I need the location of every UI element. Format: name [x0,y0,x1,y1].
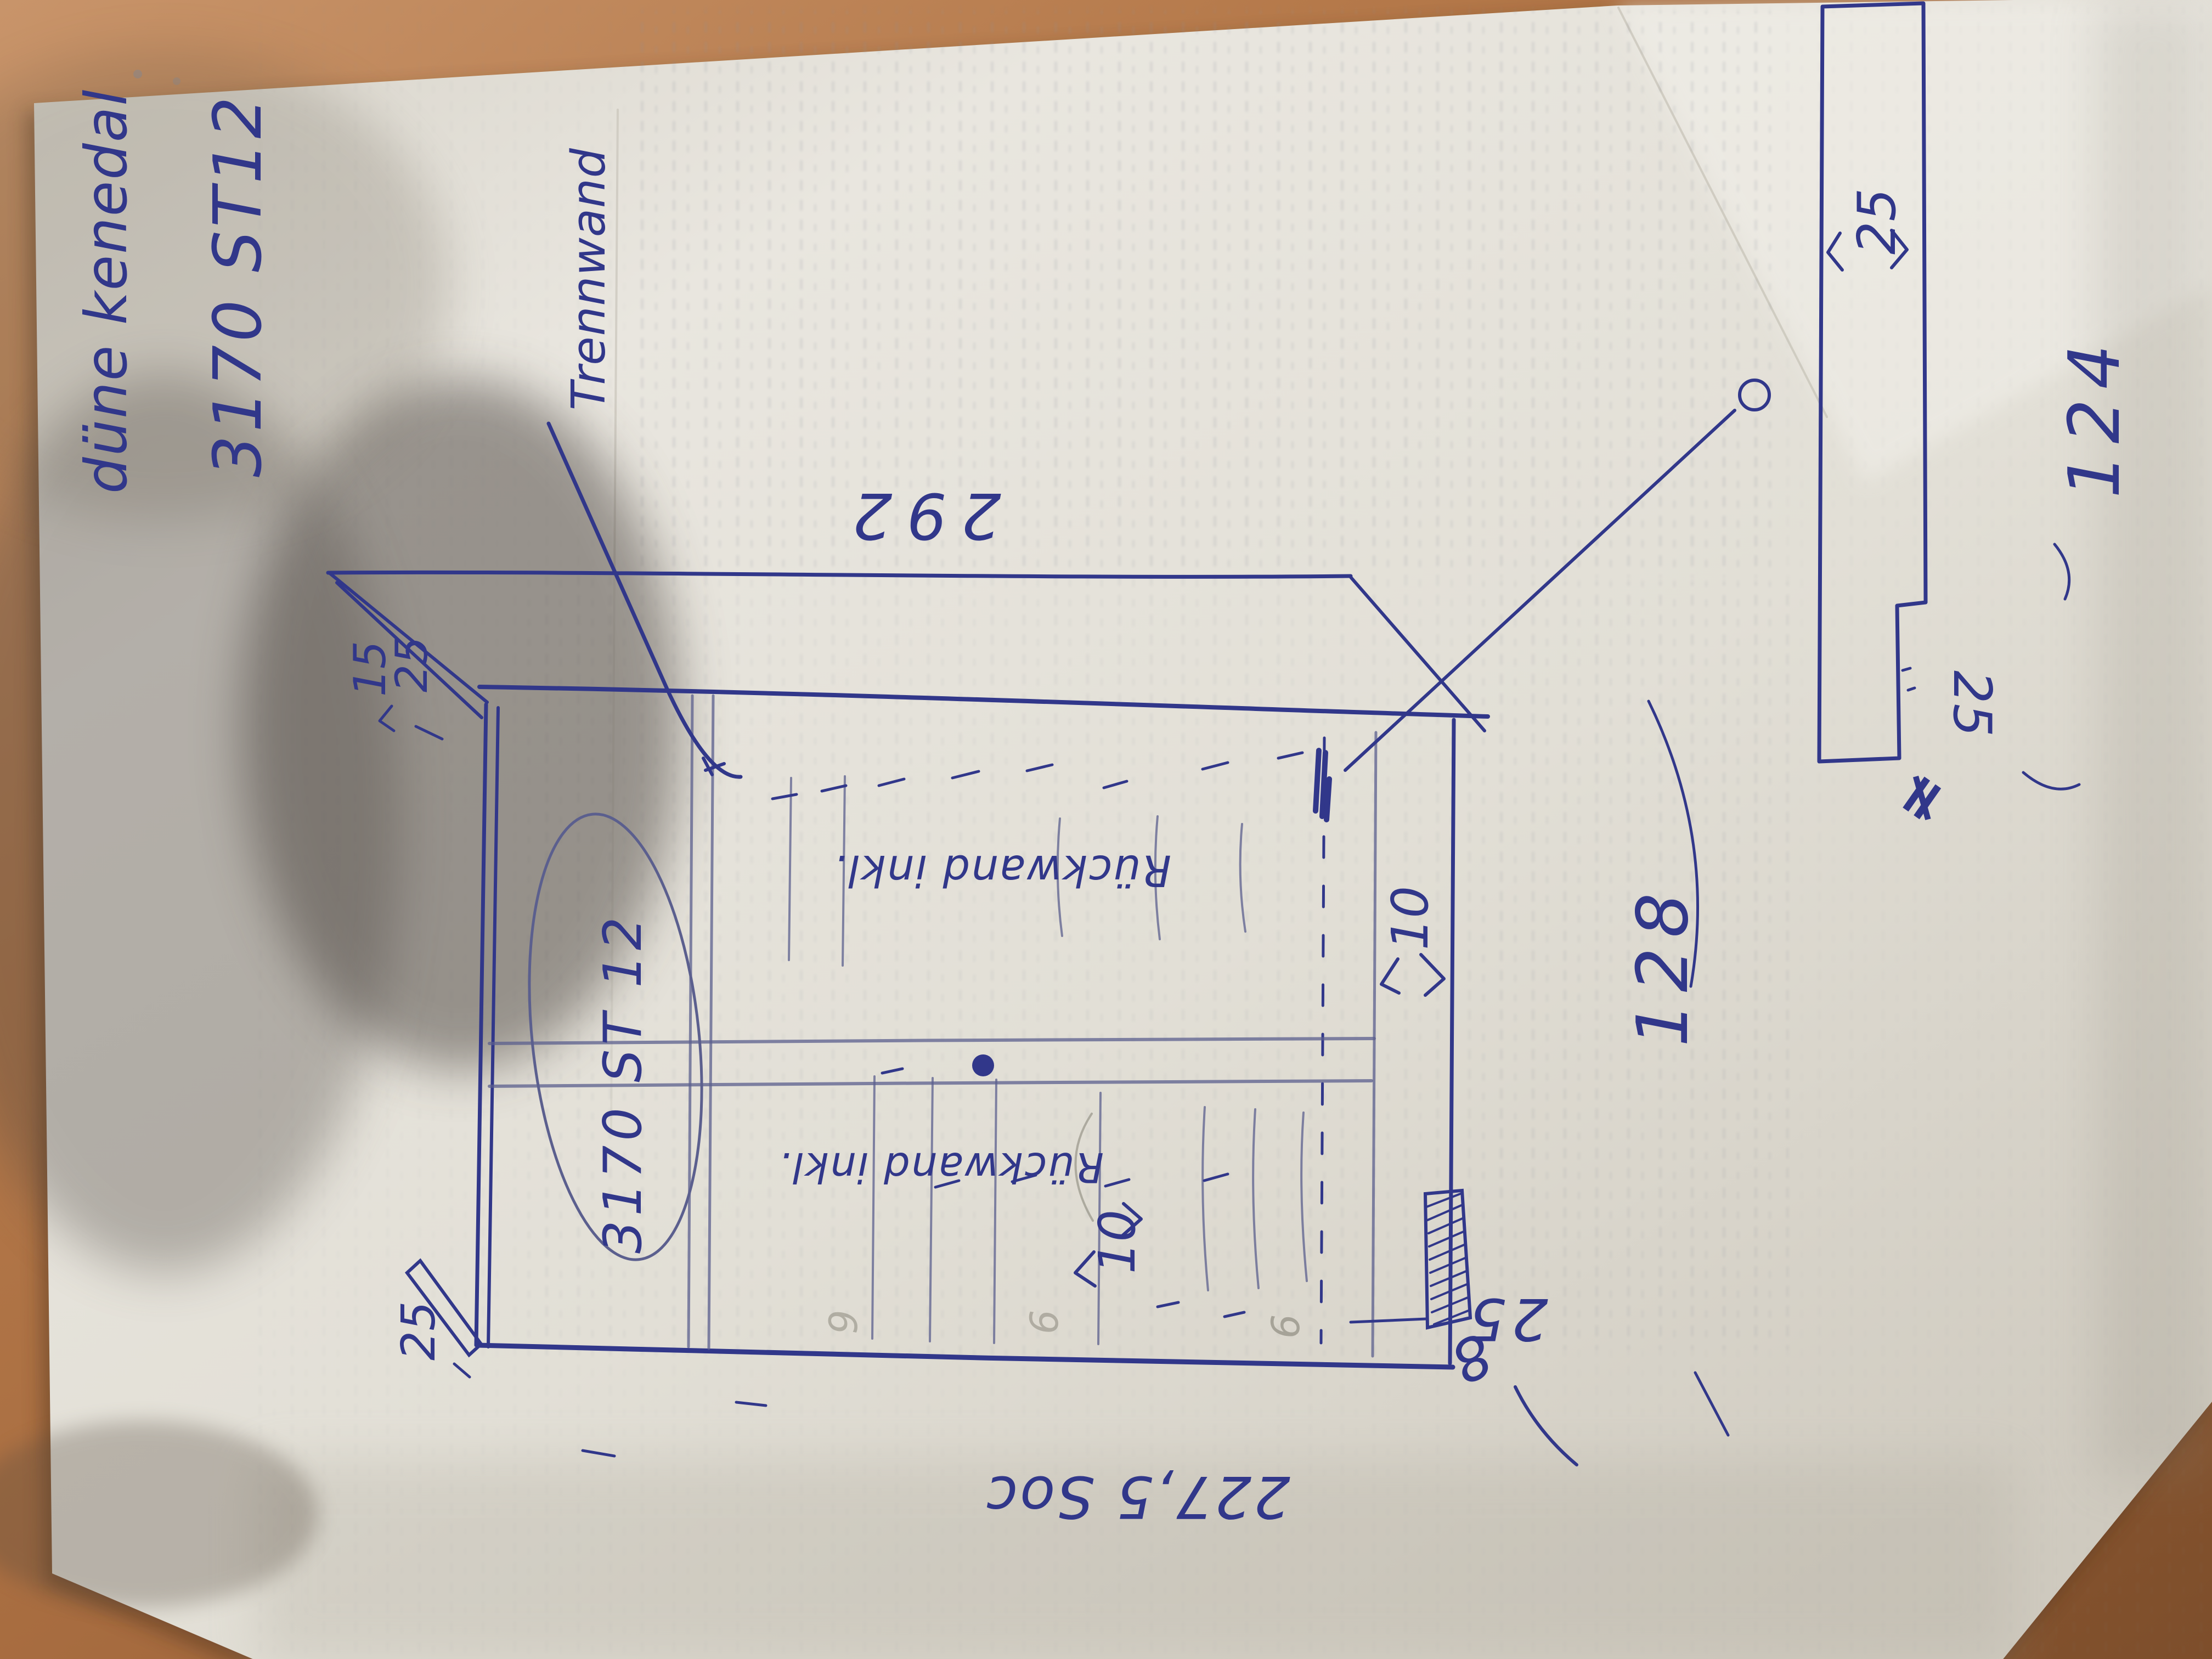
annotation-divider-text: Trennwand [562,148,616,410]
dim-10-right-label: 10 [1381,886,1440,950]
note-right-compartment: Rückwand inkl. [832,845,1171,895]
strip-width-step-label: 25 [1942,670,2002,737]
photo-of-hand-sketch: düne kenedal 3170 ST12 292 [0,0,2212,1659]
ink-blob [972,1054,994,1076]
corner-top-mark-b: 25 [386,636,437,692]
sketch-photo-canvas: düne kenedal 3170 ST12 292 [0,0,2212,1659]
dim-10-left-label: 10 [1088,1210,1147,1274]
strip-width-top-label: 25 [1847,188,1908,255]
note-left-compartment: Rückwand inkl. [777,1143,1104,1192]
decor-code-text: 3170 ST 12 [593,913,653,1254]
dim-124-label: 124 [2054,335,2136,498]
pencil-mark-1: 9 [821,1310,866,1334]
customer-name-text: düne kenedal [73,89,140,494]
dim-128-label: 128 [1622,883,1704,1047]
base-note-text: 227,5 Soc [984,1463,1290,1530]
model-code-text: 3170 ST12 [200,93,276,477]
dim-292-label: 292 [838,478,1002,552]
corner-bottom-mark: 25 [392,1301,446,1361]
pencil-mark-3: 6 [1263,1314,1308,1339]
ink-scribble-mark [1316,751,1329,820]
pencil-mark-2: 6 [1022,1310,1067,1334]
print-bleedthrough-top [631,11,1783,576]
